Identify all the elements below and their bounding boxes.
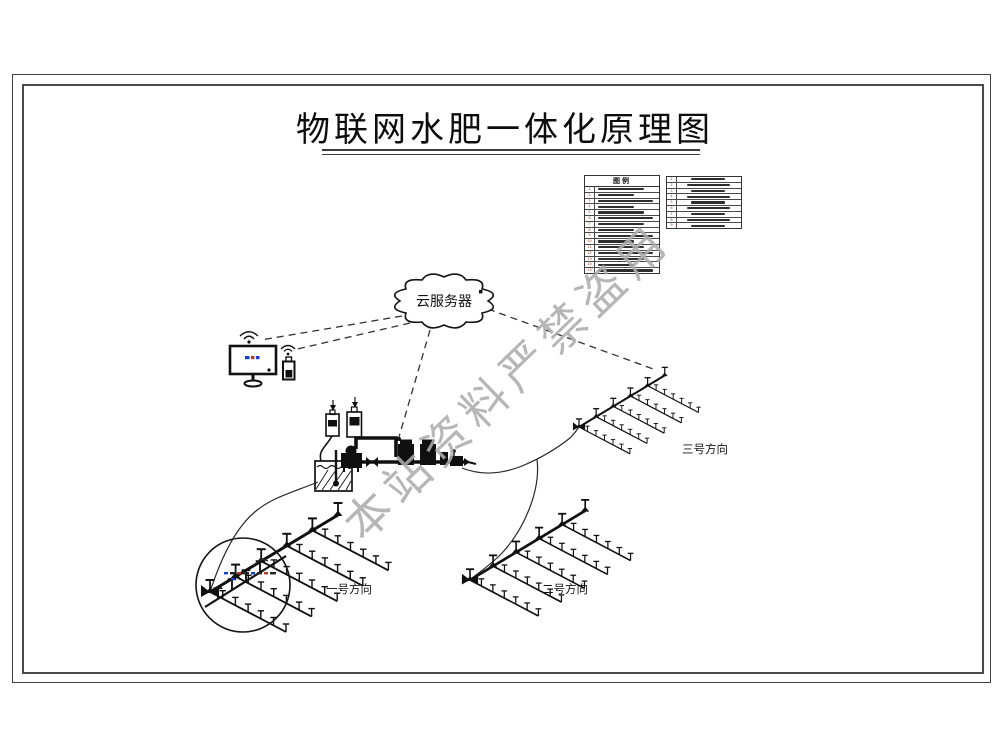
fertilizer-tank-b — [347, 397, 362, 437]
field-grid-3 — [573, 367, 701, 453]
field-grid-1 — [201, 503, 392, 632]
suction-hose — [320, 436, 332, 461]
phone-icon — [283, 357, 295, 380]
fertigation-station — [315, 397, 476, 491]
monitor-terminal — [230, 332, 276, 387]
manifold-valve — [366, 457, 378, 467]
cloud-label: 云服务器 — [416, 294, 472, 310]
wifi-icon — [240, 332, 258, 344]
link-cloud-monitor — [261, 316, 402, 340]
controller-node — [397, 437, 401, 441]
fertilizer-tank-a — [326, 400, 339, 436]
link-cloud-phone — [293, 323, 410, 350]
valve-cluster — [440, 449, 476, 466]
schematic-canvas: 一号方向 二号方向 三号方向 云服务器 — [0, 0, 1000, 750]
pipe-to-field3 — [462, 427, 579, 473]
field-grid-2 — [462, 500, 634, 616]
field2-label: 二号方向 — [542, 582, 588, 596]
wifi-icon — [281, 346, 295, 356]
cloud-server: 云服务器 — [395, 274, 494, 328]
sand-filter-a — [398, 440, 414, 466]
sand-filter-b — [420, 440, 436, 466]
link-cloud-controller — [399, 330, 430, 437]
pipe-to-field2 — [470, 459, 538, 580]
link-cloud-field3-valve — [488, 309, 656, 370]
field3-label: 三号方向 — [682, 442, 728, 456]
field1-label: 一号方向 — [326, 582, 372, 596]
monitor-icon — [230, 346, 276, 387]
mobile-terminal — [281, 346, 295, 380]
cloud-dot — [479, 290, 482, 293]
foot-valve — [333, 481, 339, 487]
